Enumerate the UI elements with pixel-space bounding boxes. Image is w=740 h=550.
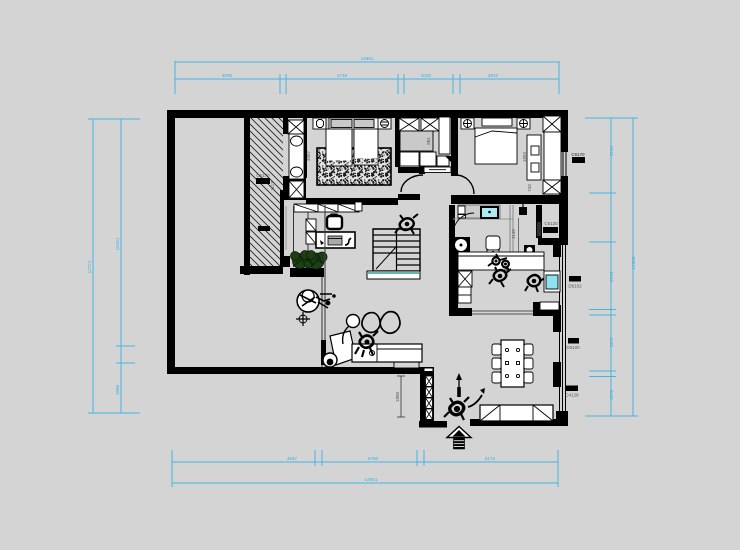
- svg-text:2978: 2978: [609, 271, 614, 282]
- svg-text:4746: 4746: [337, 73, 348, 78]
- svg-text:14801: 14801: [365, 477, 378, 482]
- svg-text:C6170: C6170: [571, 152, 585, 157]
- svg-text:4005: 4005: [222, 73, 233, 78]
- svg-text:D6100: D6100: [566, 345, 580, 350]
- svg-text:C6120: C6120: [544, 221, 558, 226]
- svg-text:4847: 4847: [287, 456, 298, 461]
- svg-text:1145: 1145: [511, 229, 516, 239]
- svg-text:1876: 1876: [609, 389, 614, 400]
- svg-text:1892: 1892: [522, 151, 527, 162]
- svg-text:2020: 2020: [421, 73, 432, 78]
- svg-text:D6102: D6102: [568, 284, 582, 289]
- svg-text:C6170: C6170: [256, 173, 270, 178]
- svg-text:12888: 12888: [631, 256, 636, 269]
- svg-text:2942: 2942: [488, 73, 499, 78]
- svg-text:5750: 5750: [368, 456, 379, 461]
- svg-text:3371: 3371: [609, 336, 614, 347]
- svg-text:3134: 3134: [609, 145, 614, 156]
- svg-text:5174: 5174: [485, 456, 496, 461]
- svg-text:10151: 10151: [115, 237, 120, 250]
- svg-text:3357: 3357: [306, 150, 311, 161]
- svg-text:881: 881: [426, 137, 431, 145]
- svg-text:1117: 1117: [270, 181, 275, 191]
- svg-text:14961: 14961: [361, 56, 374, 61]
- svg-text:12721: 12721: [87, 260, 92, 273]
- svg-text:1866: 1866: [115, 384, 120, 395]
- svg-text:C4128: C4128: [565, 393, 579, 398]
- svg-text:743: 743: [527, 184, 532, 192]
- svg-text:1800: 1800: [395, 391, 400, 402]
